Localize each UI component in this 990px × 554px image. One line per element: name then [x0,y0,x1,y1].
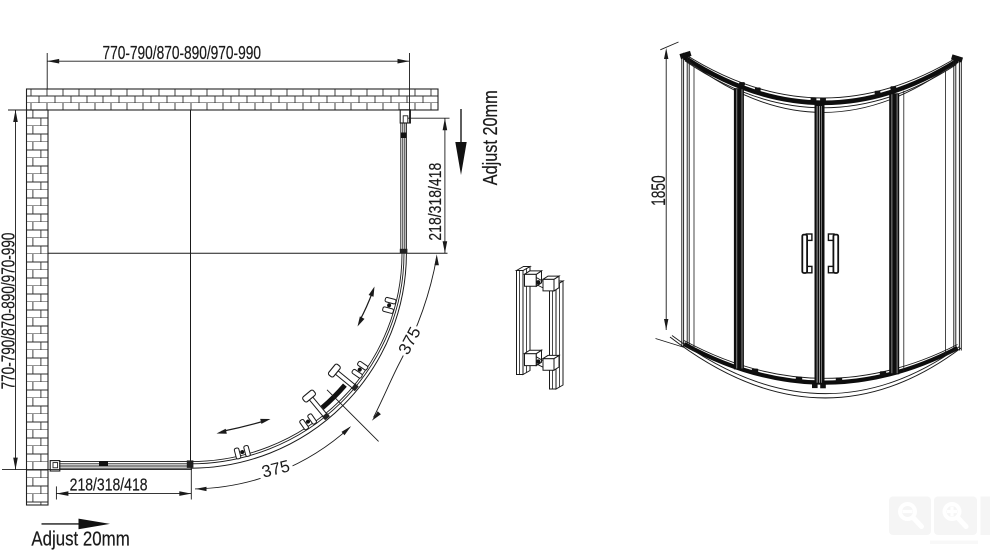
svg-text:770-790/870-890/970-990: 770-790/870-890/970-990 [0,233,19,390]
svg-text:Adjust 20mm: Adjust 20mm [31,527,129,550]
svg-text:Adjust 20mm: Adjust 20mm [478,90,501,185]
svg-text:770-790/870-890/970-990: 770-790/870-890/970-990 [103,43,261,63]
svg-text:1850: 1850 [648,175,670,205]
svg-text:218/318/418: 218/318/418 [70,476,148,495]
svg-text:218/318/418: 218/318/418 [427,163,446,241]
